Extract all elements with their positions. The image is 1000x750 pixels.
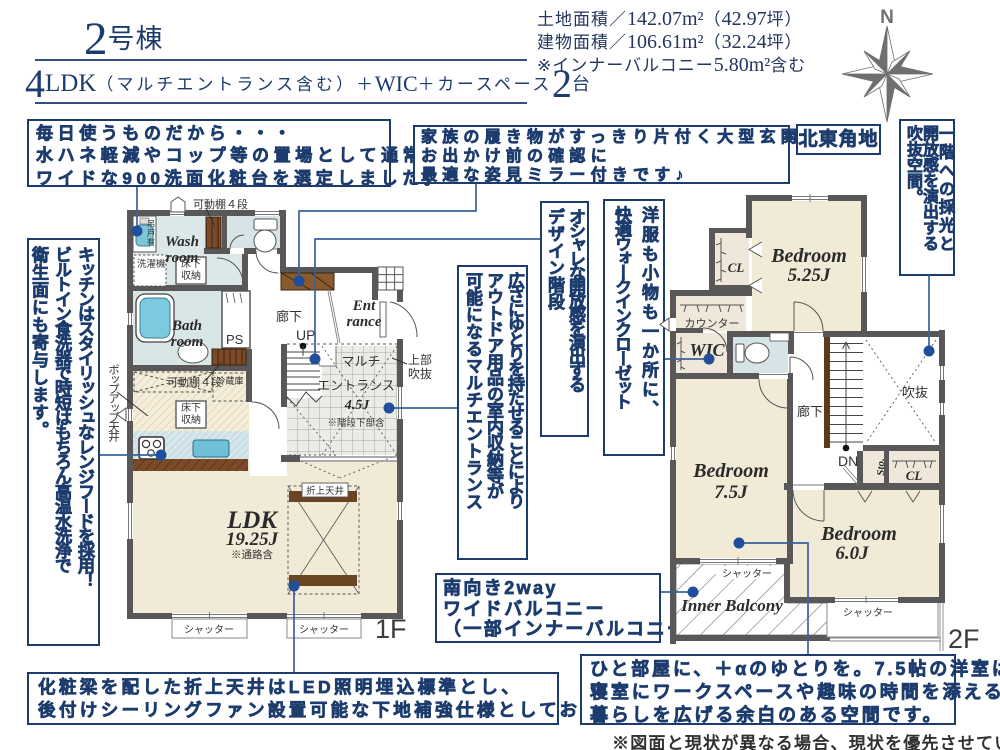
svg-text:DN: DN	[838, 453, 858, 469]
svg-text:※通路含: ※通路含	[231, 548, 273, 561]
svg-text:UP: UP	[296, 327, 315, 343]
svg-text:カウンター: カウンター	[685, 317, 740, 330]
svg-text:Sto.: Sto.	[875, 458, 887, 475]
svg-text:Wash: Wash	[165, 234, 199, 250]
svg-text:2F: 2F	[948, 624, 980, 654]
svg-text:可動棚４段: 可動棚４段	[167, 375, 222, 389]
svg-text:Ent: Ent	[352, 298, 376, 314]
svg-text:room: room	[171, 334, 204, 350]
svg-text:CL: CL	[906, 468, 923, 483]
svg-text:19.25J: 19.25J	[226, 529, 279, 550]
svg-text:床下: 床下	[181, 401, 201, 414]
svg-text:シャッター: シャッター	[843, 607, 893, 619]
svg-text:折上天井: 折上天井	[306, 485, 344, 497]
svg-text:Bedroom: Bedroom	[692, 460, 769, 482]
svg-text:洗濯機: 洗濯機	[137, 258, 166, 270]
svg-text:マルチ: マルチ	[341, 354, 380, 369]
svg-text:シャッター: シャッター	[722, 568, 772, 580]
svg-text:Inner Balcony: Inner Balcony	[680, 596, 783, 615]
svg-text:Bedroom: Bedroom	[820, 523, 897, 545]
svg-text:5.25J: 5.25J	[788, 265, 831, 286]
svg-text:Bath: Bath	[171, 318, 202, 334]
svg-text:4.5J: 4.5J	[344, 398, 371, 413]
svg-text:吹抜: 吹抜	[408, 367, 432, 381]
svg-text:冷蔵庫: 冷蔵庫	[216, 375, 243, 386]
svg-text:rance: rance	[347, 314, 382, 330]
svg-text:廊下: 廊下	[797, 404, 823, 419]
svg-text:吊戸有: 吊戸有	[147, 219, 156, 247]
svg-text:シャッター: シャッター	[299, 624, 349, 636]
svg-text:エントランス: エントランス	[317, 378, 395, 393]
svg-text:6.0J: 6.0J	[835, 543, 869, 564]
svg-text:※階段下部含: ※階段下部含	[327, 417, 385, 429]
svg-text:廊下: 廊下	[276, 309, 302, 324]
svg-text:Bedroom: Bedroom	[770, 245, 847, 267]
svg-text:収納: 収納	[181, 413, 201, 426]
svg-text:シャッター: シャッター	[184, 624, 234, 636]
svg-text:吹抜: 吹抜	[902, 385, 928, 400]
svg-text:1F: 1F	[375, 614, 407, 644]
svg-text:7.5J: 7.5J	[714, 482, 748, 503]
svg-text:可動棚４段: 可動棚４段	[193, 197, 248, 211]
svg-text:上部: 上部	[408, 352, 432, 367]
svg-text:床下: 床下	[181, 257, 201, 270]
svg-text:PS: PS	[226, 332, 244, 347]
svg-text:N: N	[880, 7, 894, 28]
svg-text:収納: 収納	[181, 269, 201, 282]
svg-text:CL: CL	[728, 260, 745, 275]
